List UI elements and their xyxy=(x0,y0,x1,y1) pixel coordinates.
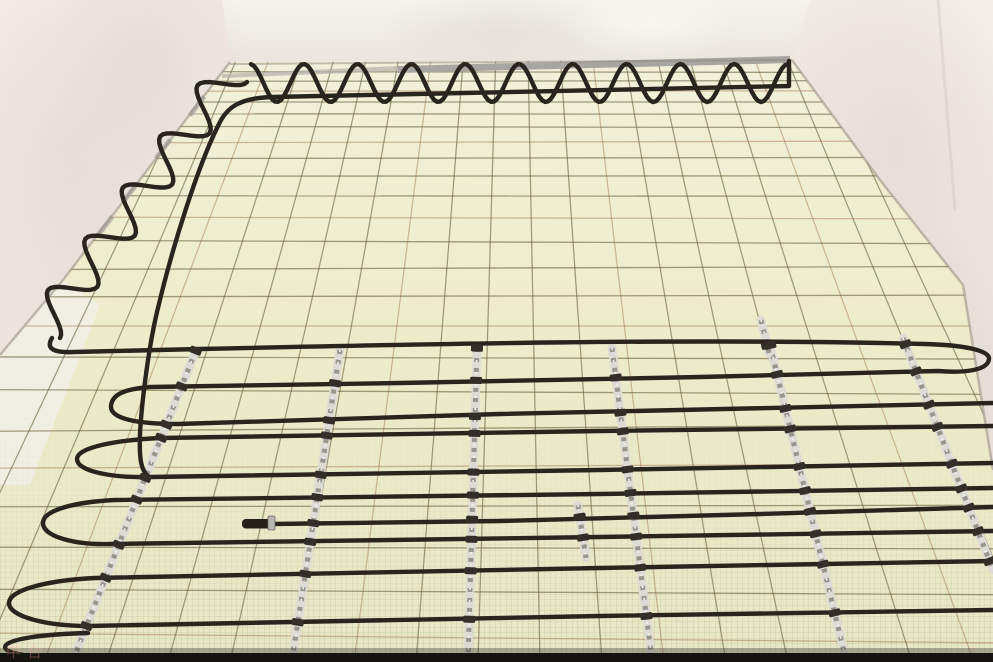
cable-clamp xyxy=(468,430,480,437)
cable-clamp xyxy=(465,536,477,543)
cable-clamp xyxy=(464,567,476,574)
cable-clamp xyxy=(470,377,482,384)
cable-clamp xyxy=(469,413,481,420)
cable-end-clamp xyxy=(268,516,275,530)
cable-clamp xyxy=(463,616,475,623)
underfloor-heating-scene xyxy=(0,0,993,662)
cable-clamp xyxy=(467,468,479,475)
cable-clamp xyxy=(467,491,479,498)
photo-bottom-band xyxy=(0,653,993,662)
cable-clamp xyxy=(466,516,478,523)
cable-clamp xyxy=(471,344,483,351)
room-photo: 中合 xyxy=(0,0,993,662)
bottom-shadow xyxy=(0,648,993,653)
